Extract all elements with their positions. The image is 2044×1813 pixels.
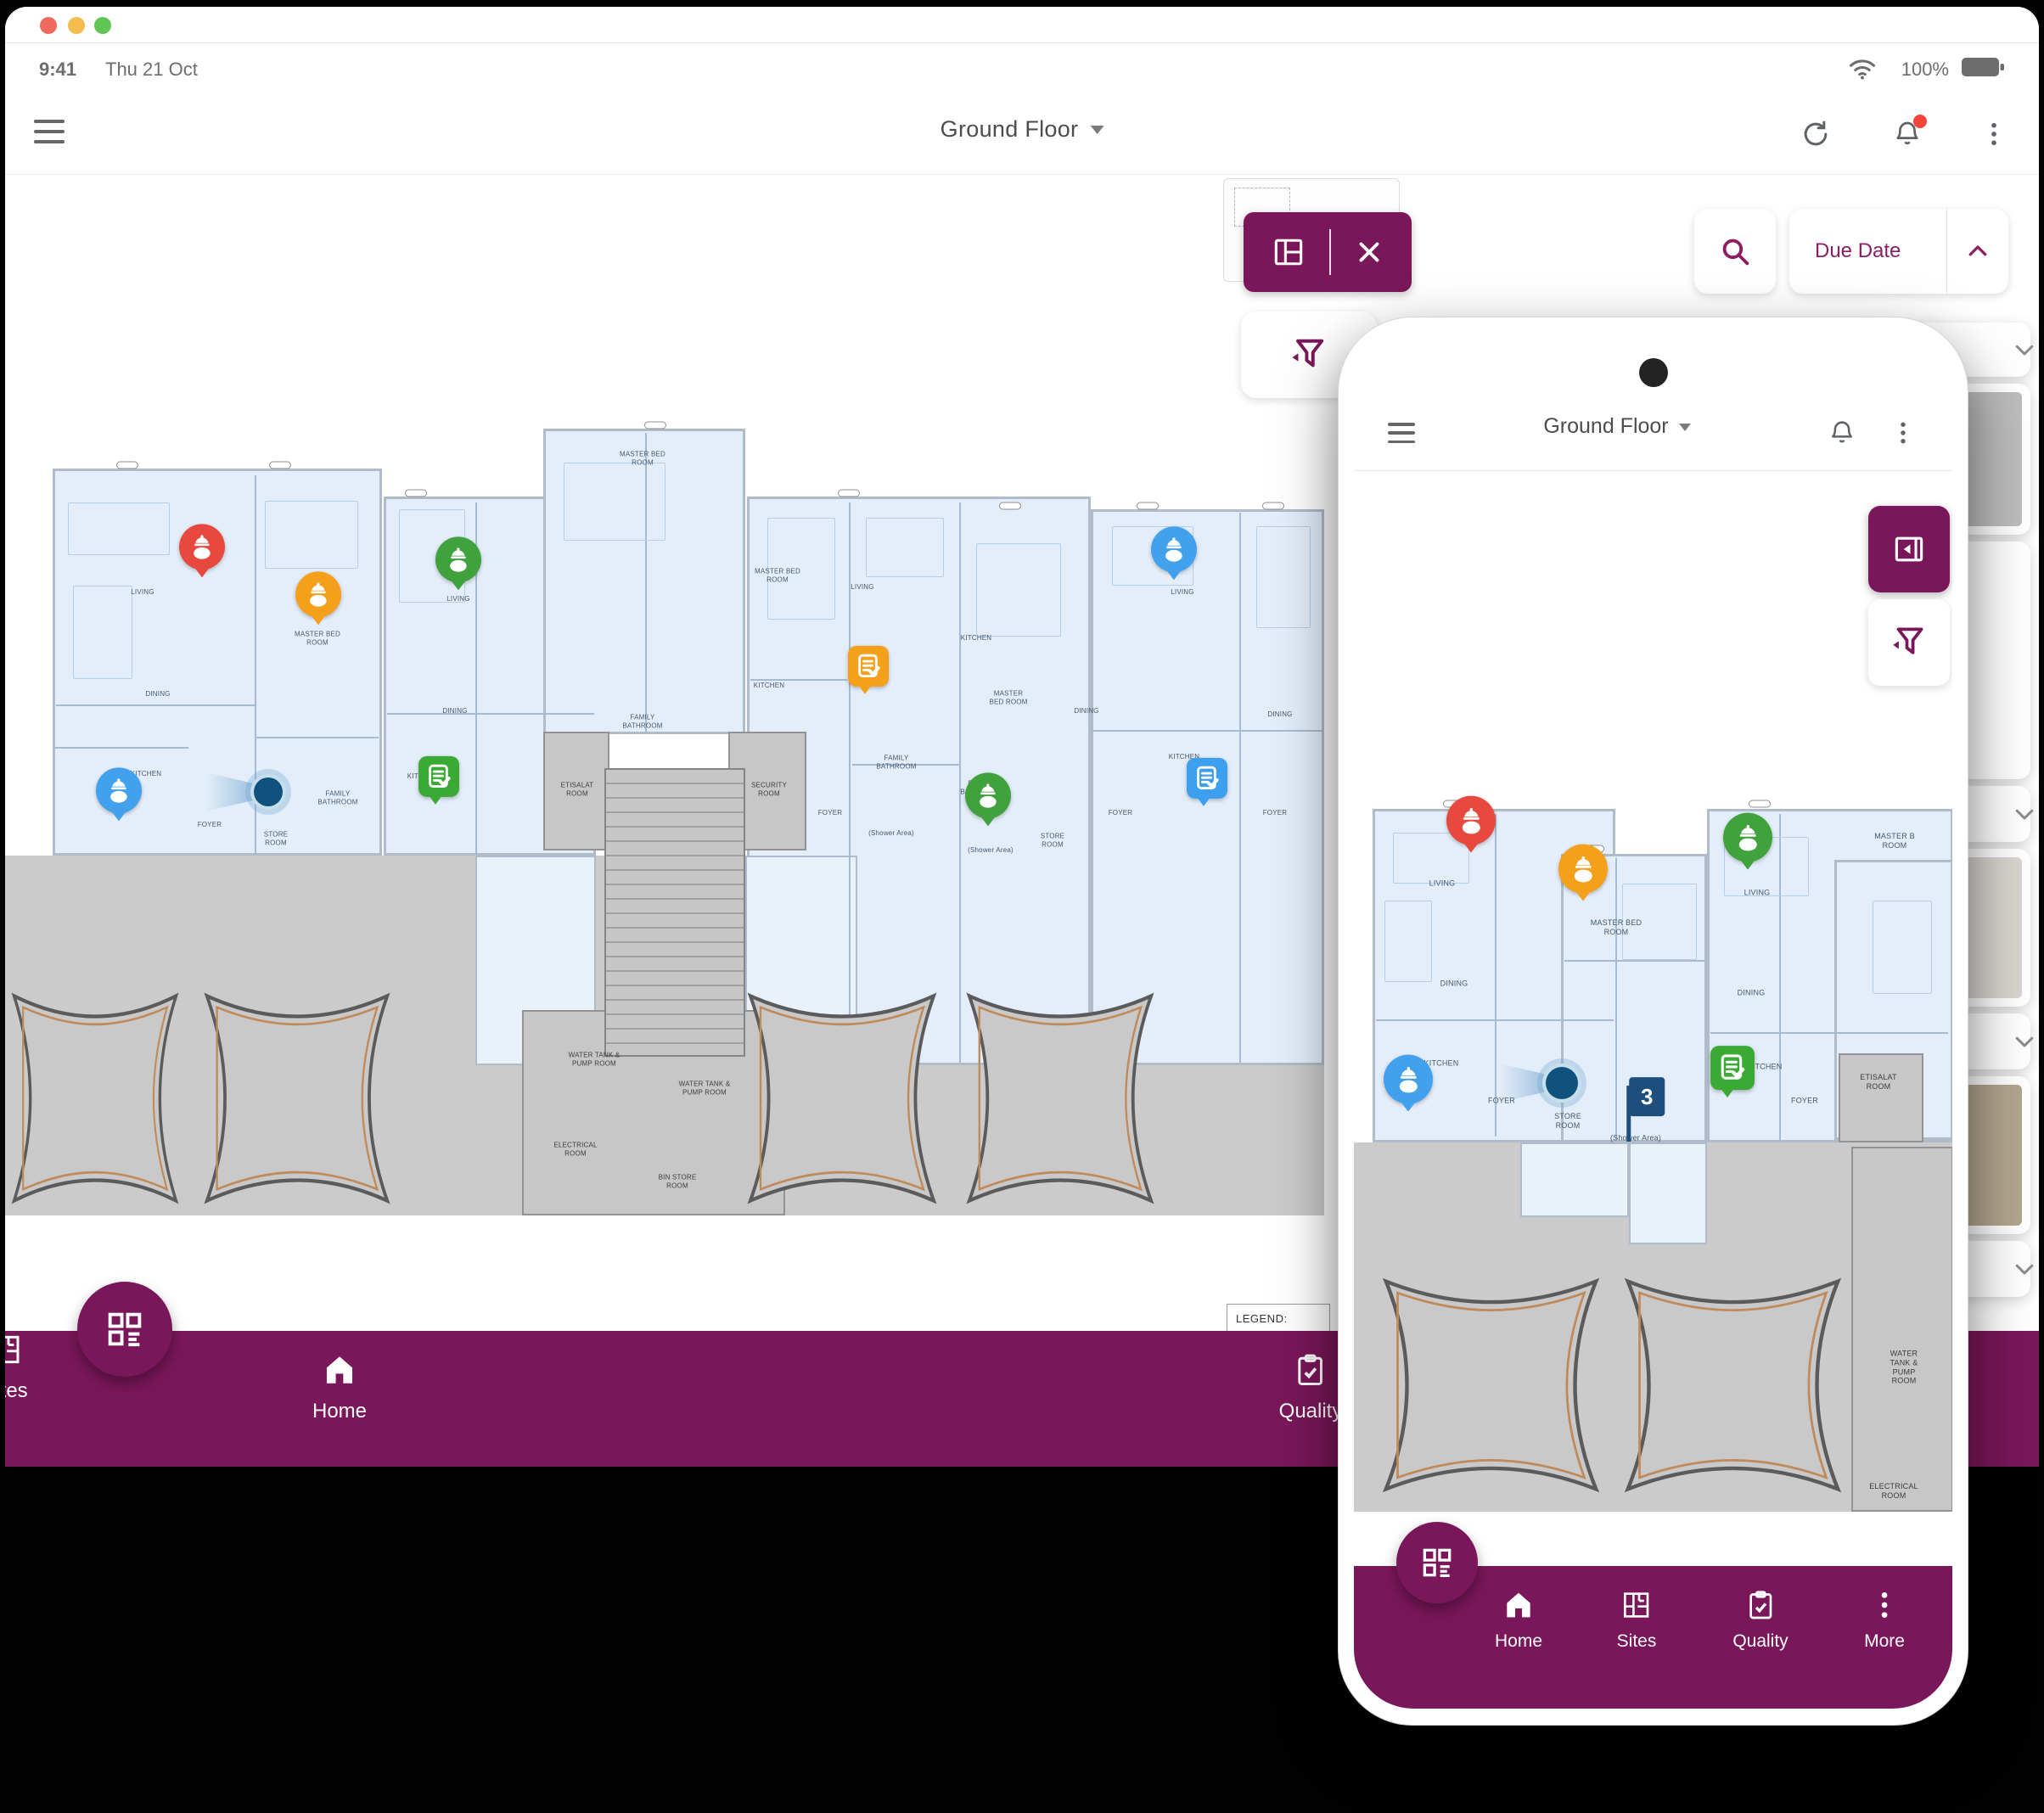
wifi-icon [1847, 53, 1878, 84]
interior-wall [1495, 814, 1496, 1137]
battery-icon [1961, 55, 2005, 79]
room-label: (Shower Area) [868, 829, 914, 838]
floor-selector[interactable]: Ground Floor [941, 116, 1104, 143]
furniture-outline [1384, 901, 1432, 982]
more-dots-icon [1867, 1588, 1901, 1622]
page-title: Ground Floor [941, 116, 1079, 143]
room-label: LIVING [1171, 588, 1193, 597]
interior-wall [56, 704, 256, 706]
room-label: SECURITY ROOM [751, 781, 787, 797]
room-label: LIVING [1744, 889, 1771, 898]
person-pin[interactable] [435, 536, 481, 582]
nav-quality[interactable]: Quality [1732, 1588, 1788, 1652]
home-icon [321, 1351, 358, 1389]
phone-camera-dot [1639, 358, 1668, 387]
interior-wall [1239, 513, 1241, 1063]
qr-code-icon [103, 1307, 147, 1351]
interior-wall [1091, 730, 1322, 732]
menu-icon[interactable] [1388, 423, 1415, 443]
apartment-unit [1629, 1142, 1707, 1244]
phone-app-header: Ground Floor [1354, 399, 1952, 471]
dimension-mark [1749, 800, 1771, 808]
room-label: LIVING [1429, 879, 1456, 889]
room-label: FAMILY BATHROOM [317, 789, 357, 805]
room-label: STORE ROOM [1041, 832, 1064, 848]
sort-label: Due Date [1789, 239, 1946, 263]
furniture-outline [866, 518, 944, 577]
canopy-shape [1374, 1270, 1608, 1501]
floor-selector[interactable]: Ground Floor [1490, 414, 1744, 439]
room-label: MASTER BED ROOM [620, 450, 665, 466]
photo-thumbnail [1959, 392, 2022, 526]
nav-more-label: More [1864, 1631, 1905, 1652]
checklist-pin[interactable] [848, 646, 889, 687]
dimension-mark [644, 422, 666, 429]
minimize-window-button[interactable] [68, 17, 85, 34]
app-header: Ground Floor [5, 96, 2039, 175]
room-label: ELECTRICAL ROOM [553, 1141, 597, 1157]
room-label: MASTER B ROOM [1874, 832, 1915, 850]
room-label: STORE ROOM [1554, 1112, 1581, 1131]
room-label: DINING [1440, 979, 1468, 989]
interior-wall [53, 747, 188, 749]
sync-icon[interactable] [1800, 118, 1832, 150]
interior-wall [1710, 1032, 1948, 1034]
filter-funnel-icon [1287, 333, 1331, 377]
person-pin[interactable] [1723, 813, 1772, 862]
notification-badge [1913, 115, 1927, 128]
room-label: BIN STORE ROOM [659, 1173, 697, 1189]
room-label: (Shower Area) [968, 846, 1014, 855]
chevron-down-icon [1679, 424, 1691, 437]
nav-quality-label: Quality [1279, 1400, 1343, 1423]
person-pin[interactable] [179, 524, 225, 570]
battery-percent: 100% [1901, 59, 1949, 81]
canopy-shape [1616, 1270, 1850, 1501]
close-window-button[interactable] [40, 17, 57, 34]
sites-floorplan-icon [1620, 1588, 1654, 1622]
page: 9:41 Thu 21 Oct 100% Ground Floor [0, 0, 2044, 1813]
qr-scan-button[interactable] [1396, 1522, 1478, 1603]
room-label: FOYER [1109, 809, 1133, 817]
nav-quality[interactable]: Quality [1279, 1351, 1343, 1423]
room-label: DINING [145, 690, 170, 699]
room-label: FOYER [198, 821, 222, 829]
dimension-mark [999, 502, 1021, 510]
interior-wall [1564, 960, 1705, 962]
room-label: KITCHEN [961, 634, 992, 643]
furniture-outline [265, 501, 358, 569]
room-label: ETISALAT ROOM [561, 781, 594, 797]
dimension-mark [405, 490, 427, 497]
person-pin[interactable] [295, 571, 341, 617]
furniture-outline [1256, 526, 1311, 628]
kebab-menu-icon[interactable] [1888, 418, 1918, 448]
notifications-bell-icon[interactable] [1891, 118, 1923, 150]
room-label: DINING [1267, 710, 1292, 719]
interior-wall [750, 679, 847, 681]
dimension-mark [838, 490, 860, 497]
nav-sites[interactable]: Sites [5, 1331, 28, 1403]
nav-home[interactable]: Home [312, 1351, 367, 1423]
camera-dot-pin[interactable] [1542, 1064, 1581, 1103]
room-label: LIVING [446, 595, 469, 603]
filter-funnel-icon [1888, 621, 1930, 664]
panel-collapse-button[interactable] [1868, 506, 1950, 592]
room-label: FOYER [1263, 809, 1288, 817]
nav-home-label: Home [1495, 1631, 1542, 1652]
checklist-pin[interactable] [418, 756, 459, 797]
dimension-mark [1137, 502, 1159, 510]
person-pin[interactable] [1384, 1055, 1433, 1104]
phone-screen: Ground Floor LIVINGDININGKITCHENMASTER B… [1354, 333, 1952, 1709]
room-label: FAMILY BATHROOM [622, 713, 662, 729]
person-pin[interactable] [1558, 845, 1608, 894]
furniture-outline [564, 463, 665, 541]
person-pin[interactable] [1446, 796, 1496, 845]
room-label: ETISALAT ROOM [1860, 1073, 1896, 1092]
sort-due-date-button[interactable]: Due Date [1789, 209, 2008, 294]
room-label: WATER TANK & PUMP ROOM [679, 1080, 731, 1096]
room-label: FOYER [1791, 1097, 1818, 1106]
phone-floorplan-canvas[interactable]: LIVINGDININGKITCHENMASTER BED ROOMLIVING… [1354, 471, 1952, 1566]
canopy-shape [959, 985, 1161, 1212]
dimension-mark [269, 462, 291, 469]
divider [1329, 229, 1331, 275]
room-label: LIVING [851, 583, 873, 592]
nav-more[interactable]: More [1864, 1588, 1905, 1652]
legend-label: LEGEND: [1227, 1312, 1288, 1325]
canopy-shape [5, 985, 185, 1212]
layout-panel-icon [1270, 233, 1307, 271]
phone-page-title: Ground Floor [1543, 414, 1668, 439]
camera-dot-pin[interactable] [250, 774, 286, 810]
room-label: MASTER BED ROOM [989, 689, 1027, 705]
room-label: MASTER BED ROOM [295, 630, 340, 646]
canopy-shape [197, 985, 397, 1212]
utility-room [1839, 1053, 1923, 1142]
nav-home-label: Home [312, 1400, 367, 1423]
interior-wall [256, 737, 379, 738]
apartment-unit [1520, 1142, 1629, 1217]
person-pin[interactable] [96, 767, 142, 813]
quality-clipboard-icon [1744, 1588, 1777, 1622]
interior-wall [1376, 1019, 1614, 1021]
kebab-menu-icon[interactable] [1978, 118, 2010, 150]
status-date: Thu 21 Oct [105, 59, 198, 81]
canopy-shape [740, 985, 944, 1212]
room-label: FAMILY BATHROOM [876, 754, 916, 770]
nav-home[interactable]: Home [1495, 1588, 1542, 1652]
sites-floorplan-icon [5, 1331, 24, 1368]
menu-icon[interactable] [34, 120, 65, 143]
utility-room [1851, 1147, 1952, 1512]
person-pin[interactable] [965, 772, 1011, 818]
room-label: DINING [1074, 707, 1098, 716]
furniture-outline [73, 586, 132, 679]
filter-button[interactable] [1868, 599, 1950, 686]
photo-thumbnail [1959, 1085, 2022, 1226]
dimension-mark [116, 462, 138, 469]
qr-scan-button[interactable] [77, 1282, 172, 1377]
home-icon [1502, 1588, 1536, 1622]
nav-sites[interactable]: Sites [1617, 1588, 1657, 1652]
interior-wall [1615, 858, 1617, 1142]
room-label: FOYER [818, 809, 843, 817]
collapse-panel-icon [1889, 530, 1929, 568]
quality-clipboard-icon [1292, 1351, 1329, 1389]
chevron-up-icon[interactable] [1947, 209, 2008, 294]
legend-box: LEGEND: [1227, 1304, 1330, 1333]
room-label: MASTER BED ROOM [1591, 918, 1642, 937]
room-label: WATER TANK & PUMP ROOM [1880, 1349, 1929, 1385]
furniture-outline [68, 502, 170, 555]
interior-wall [387, 713, 594, 715]
maximize-window-button[interactable] [94, 17, 111, 34]
notifications-bell-icon[interactable] [1827, 418, 1857, 448]
nav-quality-label: Quality [1732, 1631, 1788, 1652]
numbered-flag-pin[interactable]: 3 [1629, 1077, 1665, 1116]
close-icon[interactable] [1353, 236, 1385, 268]
room-label: KITCHEN [754, 682, 785, 690]
room-label: DINING [442, 707, 467, 716]
search-button[interactable] [1694, 209, 1776, 294]
nav-sites-label: Sites [5, 1379, 28, 1403]
room-label: MASTER BED ROOM [755, 567, 800, 583]
room-label: ELECTRICAL ROOM [1869, 1482, 1918, 1501]
person-pin[interactable] [1151, 526, 1197, 572]
nav-sites-label: Sites [1617, 1631, 1657, 1652]
room-label: STORE ROOM [264, 830, 288, 846]
macos-titlebar [5, 7, 2039, 43]
staircase [604, 768, 745, 1057]
chevron-down-icon [1958, 337, 1984, 362]
furniture-outline [1873, 901, 1932, 994]
chevron-down-icon [1090, 126, 1103, 141]
panel-toggle-button[interactable] [1244, 212, 1412, 292]
checklist-pin[interactable] [1710, 1046, 1755, 1090]
dimension-mark [1262, 502, 1284, 510]
status-time: 9:41 [39, 59, 76, 81]
furniture-outline [976, 543, 1061, 637]
photo-thumbnail [1959, 857, 2022, 998]
room-label: WATER TANK & PUMP ROOM [569, 1051, 620, 1067]
room-label: (Shower Area) [1610, 1134, 1661, 1143]
phone-mockup: Ground Floor LIVINGDININGKITCHENMASTER B… [1338, 317, 1968, 1726]
room-label: LIVING [131, 588, 154, 597]
room-label: DINING [1738, 989, 1766, 998]
status-bar: 9:41 Thu 21 Oct 100% [5, 43, 2039, 96]
checklist-pin[interactable] [1187, 758, 1227, 799]
qr-code-icon [1418, 1544, 1456, 1581]
